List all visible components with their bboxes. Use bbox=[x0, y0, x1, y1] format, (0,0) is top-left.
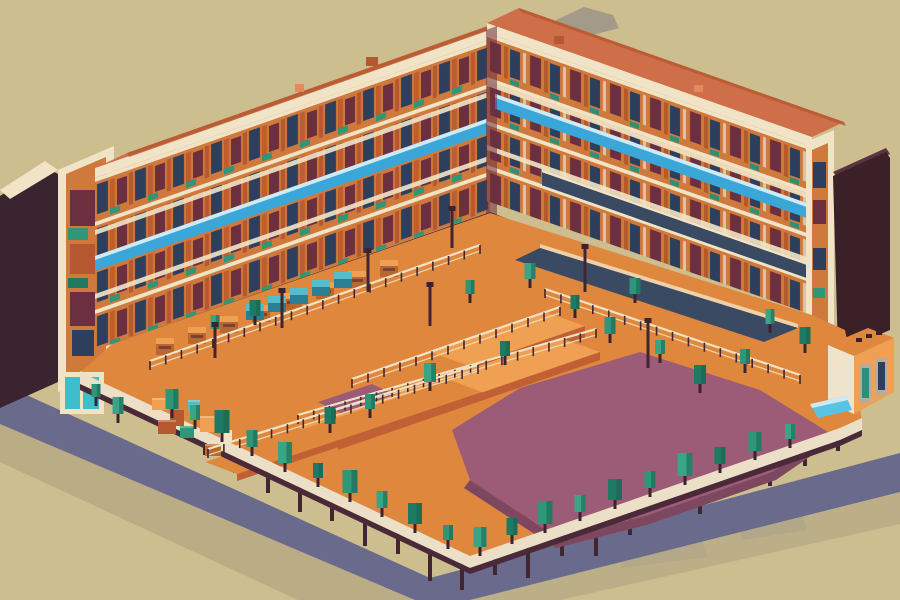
railing-post bbox=[353, 289, 355, 298]
cyan-box bbox=[334, 272, 352, 288]
railing-post bbox=[580, 334, 582, 343]
tree-canopy-shade bbox=[506, 341, 510, 356]
railing-post bbox=[624, 316, 626, 325]
kiosk-door-glass bbox=[862, 368, 869, 398]
railing-post bbox=[338, 295, 340, 304]
railing-post bbox=[527, 318, 529, 327]
tower-planter bbox=[68, 278, 88, 288]
tree-canopy-shade bbox=[383, 491, 387, 508]
railing-post bbox=[297, 415, 299, 424]
railing-post bbox=[291, 311, 293, 320]
tree-canopy-shade bbox=[746, 349, 750, 364]
tree-trunk bbox=[634, 294, 637, 303]
railing-post bbox=[350, 405, 352, 414]
railing-post bbox=[479, 335, 481, 344]
railing-post bbox=[751, 359, 753, 368]
tree-canopy-shade bbox=[771, 309, 775, 324]
tree-trunk bbox=[317, 478, 320, 487]
cyan-box-front bbox=[290, 295, 308, 304]
crate-body bbox=[158, 420, 176, 434]
stall-slit bbox=[191, 335, 203, 338]
stall-top bbox=[156, 338, 174, 344]
tower-planter bbox=[68, 228, 88, 240]
crate bbox=[200, 416, 216, 432]
pole-shaft bbox=[281, 292, 284, 328]
railing-post bbox=[704, 343, 706, 352]
tower-window bbox=[813, 200, 826, 224]
crate-top-highlight bbox=[158, 420, 176, 422]
railing-post bbox=[595, 329, 597, 338]
tree-canopy-shade bbox=[661, 340, 665, 354]
tree-trunk bbox=[171, 409, 174, 418]
stall-top bbox=[188, 327, 206, 333]
railing-post bbox=[640, 321, 642, 330]
pole-shaft bbox=[429, 286, 432, 326]
railing-post bbox=[275, 317, 277, 326]
railing-post bbox=[463, 340, 465, 349]
railing-post bbox=[783, 370, 785, 379]
railing-post bbox=[415, 357, 417, 366]
railing-post bbox=[656, 327, 658, 336]
railing-post bbox=[401, 273, 403, 282]
cyan-box-top bbox=[334, 272, 352, 279]
railing-post bbox=[517, 352, 519, 361]
railing-post bbox=[511, 324, 513, 333]
tree-trunk bbox=[649, 488, 652, 497]
railing-post bbox=[196, 344, 198, 353]
crate-top-highlight bbox=[180, 426, 194, 428]
tree-canopy-shade bbox=[581, 495, 585, 512]
railing-post bbox=[485, 361, 487, 370]
tree-canopy-shade bbox=[616, 479, 622, 500]
pole-shaft bbox=[367, 252, 370, 292]
railing-post bbox=[385, 278, 387, 287]
tree-canopy-shade bbox=[196, 405, 200, 420]
tree-trunk bbox=[414, 524, 417, 533]
railing-post bbox=[165, 355, 167, 364]
cyan-box-front bbox=[312, 287, 330, 296]
railing-post bbox=[382, 395, 384, 404]
railing-post bbox=[399, 362, 401, 371]
left-dark-slab bbox=[0, 167, 58, 408]
tree-trunk bbox=[479, 547, 482, 556]
tree-canopy-shade bbox=[721, 447, 725, 464]
tree-trunk bbox=[659, 354, 662, 363]
railing-post bbox=[212, 339, 214, 348]
tree-canopy-shade bbox=[331, 407, 335, 424]
railing-post bbox=[223, 444, 225, 453]
railing-post bbox=[383, 368, 385, 377]
tree-canopy-shade bbox=[791, 424, 795, 439]
tree-trunk bbox=[504, 356, 507, 365]
railing-post bbox=[438, 374, 440, 383]
tree-trunk bbox=[95, 397, 98, 406]
railing-post bbox=[479, 245, 481, 254]
tree-trunk bbox=[574, 309, 577, 318]
cyan-box bbox=[290, 288, 308, 304]
tree-trunk bbox=[614, 500, 617, 509]
railing-post bbox=[181, 350, 183, 359]
railing-post bbox=[544, 289, 546, 298]
railing-post bbox=[735, 354, 737, 363]
railing-post bbox=[548, 343, 550, 352]
railing-post bbox=[287, 424, 289, 433]
tree-canopy-shade bbox=[611, 317, 615, 334]
railing-post bbox=[322, 300, 324, 309]
railing-post bbox=[448, 256, 450, 265]
tree-trunk bbox=[609, 334, 612, 343]
railing-post bbox=[543, 313, 545, 322]
tree-canopy-shade bbox=[547, 501, 553, 524]
tree-trunk bbox=[529, 279, 532, 288]
kiosk-roof-slit bbox=[876, 331, 882, 335]
tree-trunk bbox=[447, 540, 450, 549]
isometric-scene bbox=[0, 0, 900, 600]
tree-trunk bbox=[254, 316, 257, 325]
tree-canopy-shade bbox=[513, 518, 517, 535]
roof-vent bbox=[295, 84, 304, 92]
tree-canopy-shade bbox=[253, 430, 257, 447]
tree-trunk bbox=[719, 464, 722, 473]
railing-post bbox=[463, 251, 465, 260]
railing-post bbox=[149, 361, 151, 370]
tree-canopy-shade bbox=[286, 442, 292, 463]
railing-post bbox=[431, 351, 433, 360]
tree-canopy-shade bbox=[431, 363, 436, 382]
tree-canopy-shade bbox=[416, 503, 422, 524]
stall-top bbox=[220, 316, 238, 322]
railing-post bbox=[318, 414, 320, 423]
tree-canopy-shade bbox=[701, 365, 706, 384]
tree-canopy-shade bbox=[97, 384, 101, 397]
kiosk-door-glass bbox=[878, 362, 885, 390]
tree-trunk bbox=[369, 409, 372, 418]
tree-trunk bbox=[789, 439, 792, 448]
railing-post bbox=[351, 379, 353, 388]
railing-post bbox=[720, 348, 722, 357]
tree-trunk bbox=[194, 420, 197, 429]
tree-canopy-shade bbox=[687, 453, 693, 476]
railing-post bbox=[447, 346, 449, 355]
railing-post bbox=[799, 375, 801, 384]
railing-post bbox=[416, 267, 418, 276]
tree-trunk bbox=[699, 384, 702, 393]
kiosk-roof-slit bbox=[866, 334, 872, 338]
pole-cap bbox=[645, 318, 652, 323]
tree-trunk bbox=[744, 364, 747, 373]
railing-post bbox=[461, 370, 463, 379]
tree-trunk bbox=[511, 535, 514, 544]
crate-top-highlight bbox=[200, 416, 216, 418]
railing-post bbox=[259, 322, 261, 331]
tree-canopy-shade bbox=[531, 263, 535, 279]
cyan-box-top bbox=[290, 288, 308, 295]
railing-post bbox=[239, 439, 241, 448]
pole-shaft bbox=[584, 248, 587, 292]
tree-trunk bbox=[117, 414, 120, 423]
crate-top-highlight bbox=[188, 400, 200, 402]
tower-window bbox=[70, 292, 96, 326]
tree-canopy-shade bbox=[651, 471, 655, 488]
tree-canopy-shade bbox=[756, 432, 761, 451]
tree-trunk bbox=[469, 294, 472, 303]
tree-canopy-shade bbox=[371, 394, 375, 409]
stall-slit bbox=[383, 268, 395, 271]
roof-vent bbox=[554, 36, 564, 44]
tree-trunk bbox=[804, 344, 807, 353]
pole-cap bbox=[427, 282, 434, 287]
tree-trunk bbox=[684, 476, 687, 485]
tower-window bbox=[813, 248, 826, 270]
railing-post bbox=[560, 294, 562, 303]
tree-trunk bbox=[251, 447, 254, 456]
tree-trunk bbox=[429, 382, 432, 391]
tree-trunk bbox=[329, 424, 332, 433]
tree-trunk bbox=[544, 524, 547, 533]
crate bbox=[158, 420, 176, 434]
railing-post bbox=[501, 356, 503, 365]
pole-shaft bbox=[647, 322, 650, 368]
tree-canopy-shade bbox=[256, 300, 260, 316]
railing-post bbox=[243, 328, 245, 337]
railing-post bbox=[592, 305, 594, 314]
railing-post bbox=[228, 333, 230, 342]
pole-shaft bbox=[451, 210, 454, 248]
railing-post bbox=[445, 375, 447, 384]
tower-window bbox=[70, 190, 96, 226]
roof-vent bbox=[694, 85, 703, 92]
tower-window bbox=[72, 330, 94, 356]
railing-post bbox=[302, 419, 304, 428]
railing-post bbox=[271, 429, 273, 438]
railing-post bbox=[559, 307, 561, 316]
pole-cap bbox=[365, 248, 372, 253]
railing-post bbox=[495, 329, 497, 338]
tree-canopy-shade bbox=[119, 397, 123, 414]
railing-post bbox=[688, 337, 690, 346]
scene-canvas bbox=[0, 0, 900, 600]
railing-post bbox=[414, 385, 416, 394]
tree-canopy-shade bbox=[224, 410, 230, 433]
pole-cap bbox=[449, 206, 456, 211]
cyan-box-front bbox=[334, 279, 352, 288]
tree-canopy-shade bbox=[449, 525, 453, 540]
tree-trunk bbox=[769, 324, 772, 333]
railing-post bbox=[532, 347, 534, 356]
pole-cap bbox=[279, 288, 286, 293]
railing-post bbox=[207, 449, 209, 458]
tower-planter bbox=[813, 288, 825, 298]
railing-post bbox=[432, 262, 434, 271]
pole-cap bbox=[212, 322, 219, 327]
tree-canopy-shade bbox=[806, 327, 810, 344]
roof-vent bbox=[366, 57, 378, 66]
kiosk-roof-slit bbox=[856, 338, 862, 342]
railing-post bbox=[672, 332, 674, 341]
tree-canopy-shade bbox=[481, 527, 486, 547]
tree-canopy-shade bbox=[636, 278, 640, 294]
tree-trunk bbox=[221, 433, 224, 442]
cyan-box-top bbox=[312, 280, 330, 287]
tree-canopy-shade bbox=[471, 280, 475, 294]
railing-post bbox=[477, 365, 479, 374]
stall-top bbox=[380, 260, 398, 266]
building-corner-shadow bbox=[486, 26, 497, 234]
pole-cap bbox=[582, 244, 589, 249]
right-dark-slab bbox=[833, 152, 890, 352]
stall-slit bbox=[223, 324, 235, 327]
stall-slit bbox=[351, 279, 363, 282]
tree-trunk bbox=[381, 508, 384, 517]
tree-trunk bbox=[754, 451, 757, 460]
tree-canopy-shade bbox=[319, 463, 323, 478]
tree-canopy-shade bbox=[352, 470, 358, 493]
railing-post bbox=[306, 306, 308, 315]
railing-post bbox=[367, 373, 369, 382]
railing-post bbox=[398, 390, 400, 399]
railing-post bbox=[564, 338, 566, 347]
tree-canopy-shade bbox=[173, 389, 178, 409]
tree-trunk bbox=[579, 512, 582, 521]
stall-slit bbox=[159, 346, 171, 349]
tree-trunk bbox=[349, 493, 352, 502]
tower-window bbox=[70, 244, 96, 274]
tower-window bbox=[813, 162, 826, 188]
tree-canopy-shade bbox=[576, 295, 580, 309]
railing-post bbox=[767, 364, 769, 373]
crate-body bbox=[200, 416, 216, 432]
pole-shaft bbox=[214, 326, 217, 358]
cyan-box bbox=[312, 280, 330, 296]
tree-trunk bbox=[284, 463, 287, 472]
crate bbox=[180, 426, 194, 438]
